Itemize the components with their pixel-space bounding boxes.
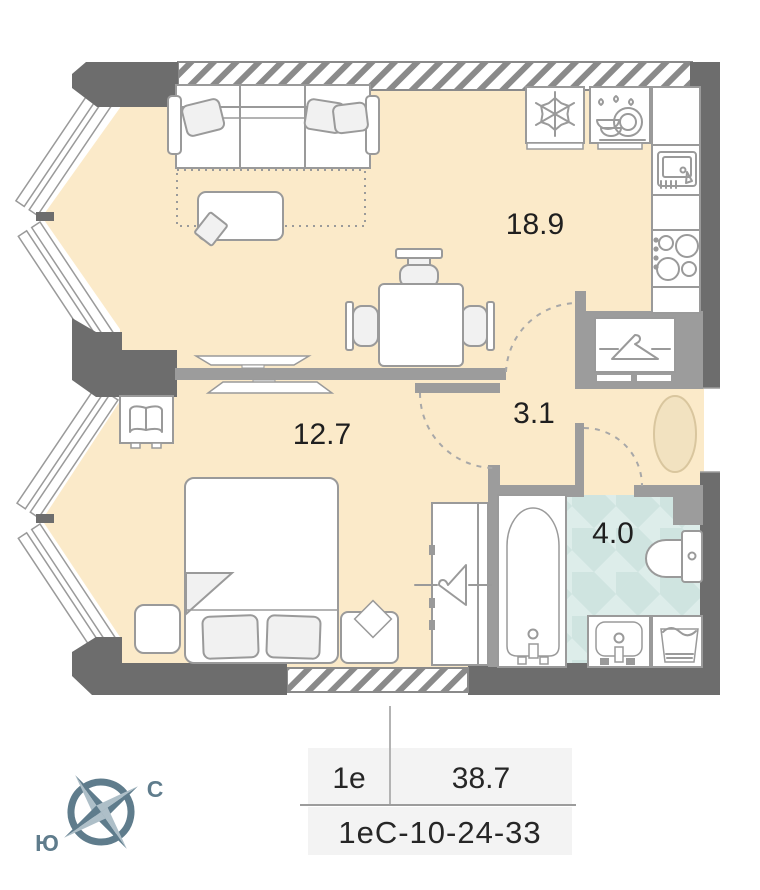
bedroom-pouf (135, 605, 180, 653)
coffee-table (194, 192, 283, 246)
laundry-basket (652, 616, 702, 667)
compass-south-label: Ю (35, 830, 59, 856)
bathroom-duct (673, 485, 703, 525)
tv-bedroom-icon (208, 380, 332, 393)
bathtub (498, 495, 566, 667)
bed (185, 478, 338, 663)
dining-table (379, 284, 463, 366)
bed-pillow (266, 615, 320, 659)
compass-north-label: С (147, 776, 164, 802)
total-area-value: 38.7 (452, 762, 510, 795)
area-label-living-kitchen: 18.9 (506, 208, 564, 241)
bed-pillow (202, 615, 258, 659)
sofa-armrest-left (168, 96, 181, 154)
toilet-tank (682, 531, 702, 582)
living-bedroom-partition (175, 368, 506, 380)
bottom-wall-hatched (287, 668, 468, 692)
apartment-code-value: 1еС-10-24-33 (338, 815, 541, 850)
bay-pier-bottom (72, 637, 122, 695)
entry-rug (654, 396, 696, 472)
area-label-bedroom: 12.7 (293, 418, 351, 451)
bathroom-sink (588, 616, 650, 667)
chair-seat (462, 306, 487, 346)
chair-back (346, 302, 353, 350)
chair-back (396, 249, 442, 258)
info-table: 1е 38.7 1еС-10-24-33 (300, 706, 576, 855)
hall-wardrobe (595, 318, 675, 381)
kitchen-counter (652, 87, 700, 313)
sofa-pillow (332, 102, 368, 134)
area-label-bathroom: 4.0 (592, 517, 634, 550)
area-label-hallway: 3.1 (513, 397, 555, 430)
book-shelf (120, 396, 173, 448)
floor-plan-drawing: 18.9 12.7 3.1 4.0 С Ю 1е 38.7 1еС-10-24-… (0, 0, 760, 890)
floor-plan-page: 18.9 12.7 3.1 4.0 С Ю 1е 38.7 1еС-10-24-… (0, 0, 760, 890)
chair-seat (353, 306, 378, 346)
chair-back (487, 302, 494, 350)
bottom-wall-left (118, 663, 287, 695)
compass-rose: С Ю (35, 749, 164, 874)
plan-type-value: 1е (332, 762, 365, 795)
sofa (168, 85, 379, 168)
